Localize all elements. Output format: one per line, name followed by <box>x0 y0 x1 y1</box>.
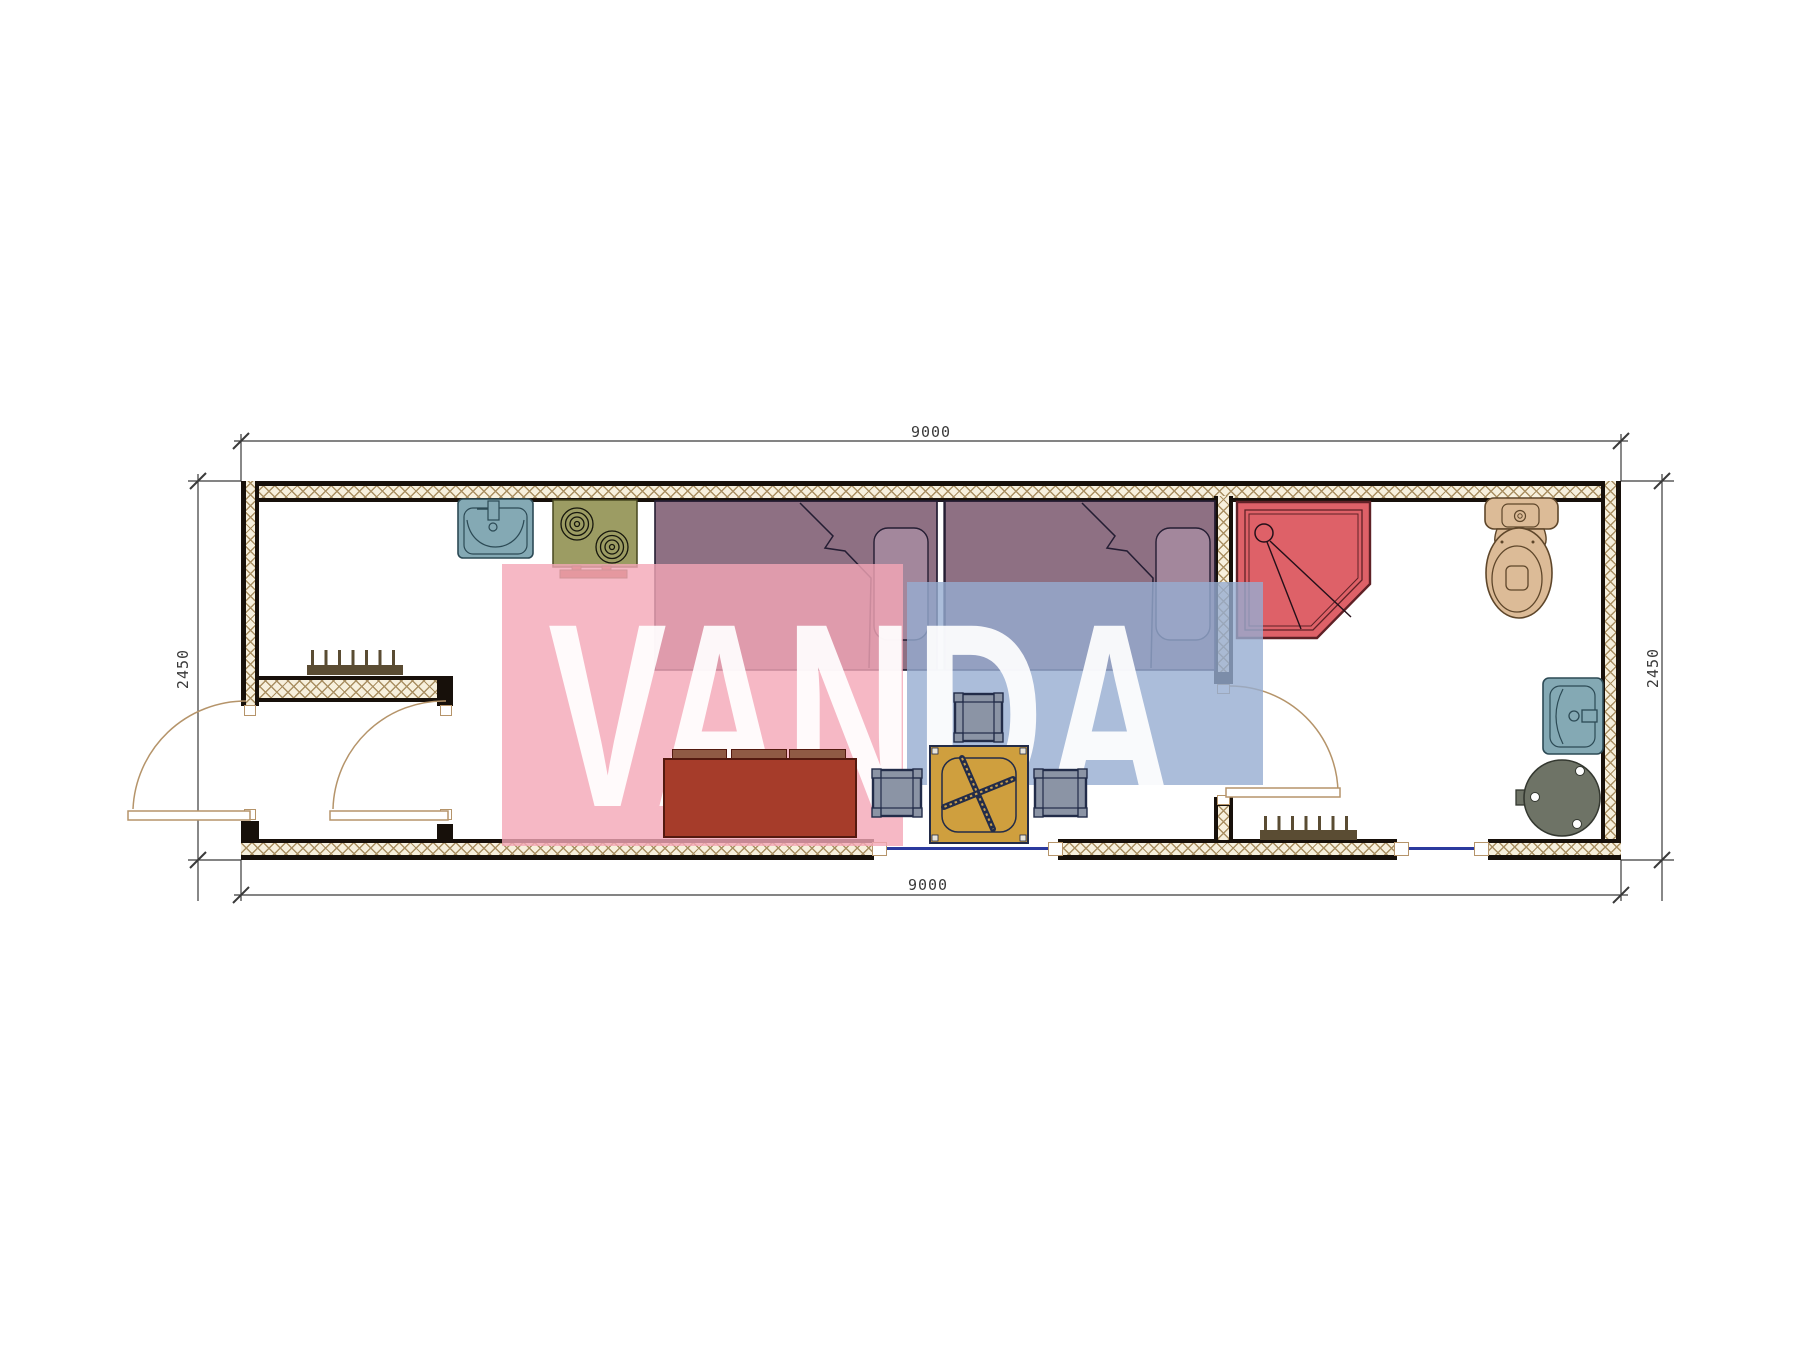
door-frame <box>440 705 452 716</box>
window-bathroom-glazing <box>1408 847 1476 850</box>
door-frame <box>244 705 256 716</box>
vestibule-door-leaf <box>330 811 448 820</box>
dim-top: 9000 <box>881 423 981 441</box>
wall-vestibule <box>259 676 453 702</box>
wall-bathroom-stub <box>1214 804 1233 840</box>
toilet <box>1485 498 1558 618</box>
dim-bottom: 9000 <box>878 876 978 894</box>
shower-head-icon <box>1255 524 1273 542</box>
dim-left: 2450 <box>174 619 192 719</box>
door-frame <box>244 809 256 820</box>
bathroom-door-leaf <box>1226 788 1340 797</box>
wall-exterior-top <box>241 481 1621 502</box>
wall-exterior-right <box>1601 481 1621 860</box>
dim-right: 2450 <box>1644 618 1662 718</box>
vestibule-door-arc <box>333 701 446 809</box>
entry-door-leaf <box>128 811 250 820</box>
radiator-hall-fins <box>311 650 399 665</box>
window-cap <box>1474 842 1489 856</box>
radiator-bath-fins <box>1264 816 1353 830</box>
wall-exterior-bottom-right <box>1488 839 1621 860</box>
door-frame <box>440 809 452 820</box>
floor-plan-canvas: 9000 9000 2450 2450 <box>0 0 1800 1350</box>
wall-exterior-left-upper <box>241 481 259 706</box>
wash-basin <box>1543 678 1603 754</box>
wall-vestibule-jamb <box>437 676 453 706</box>
radiator-bath <box>1260 830 1357 840</box>
flush-button-icon <box>1515 511 1526 522</box>
burner-icon <box>561 508 628 563</box>
watermark-text: VANDA <box>548 585 1175 847</box>
radiator-hall <box>307 665 403 675</box>
basin-tap-icon <box>1569 710 1597 722</box>
kitchen-sink <box>458 499 533 558</box>
window-cap <box>1394 842 1409 856</box>
water-boiler <box>1516 760 1600 836</box>
door-frame <box>1217 795 1230 805</box>
sofa-body <box>663 758 857 838</box>
faucet-icon <box>477 501 499 531</box>
wall-bottom-jamb <box>437 824 453 840</box>
